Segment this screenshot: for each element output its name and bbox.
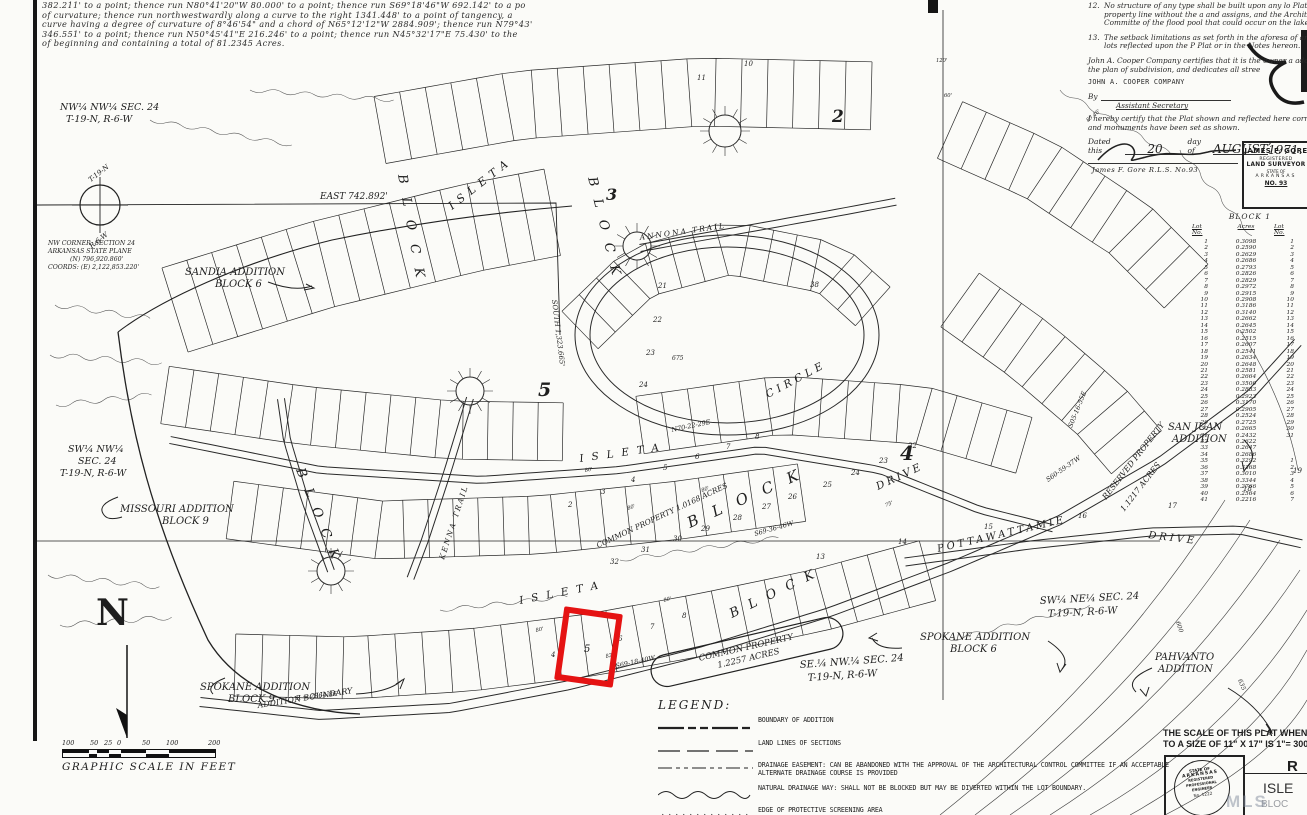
natural-drainage-way-line-icon [658, 784, 758, 804]
svg-text:8: 8 [682, 612, 687, 620]
legend: LEGEND: BOUNDARY OF ADDITION LAND LINES … [658, 698, 1218, 815]
svg-text:15: 15 [984, 523, 993, 531]
label-bearing-2: S69-36-46W [753, 519, 795, 538]
reduced-scale-note: THE SCALE OF THIS PLAT WHEN R TO A SIZE … [1163, 728, 1307, 749]
label-block-word-2: BLOCK [584, 174, 626, 289]
lot-table-col3-header: Lot No. [1274, 224, 1304, 237]
surveyor-name-line: James F. Gore R.L.S. No.93 [1092, 166, 1198, 174]
mls-watermark: MLS [1226, 792, 1268, 812]
note-12-text: No structure of any type shall be built … [1104, 2, 1307, 28]
note-13-text: The setback limitations as set forth in … [1104, 34, 1307, 51]
by-title: Assistant Secretary [1116, 102, 1307, 111]
lot-table: Lot No. Acres Lot No. 10.3098120.2590230… [1192, 224, 1307, 503]
svg-text:13: 13 [816, 553, 825, 561]
svg-text:2: 2 [567, 501, 573, 509]
label-missouri-2: BLOCK 9 [161, 516, 209, 527]
label-sw-ne-1: SW¼ NE¼ SEC. 24 [1040, 591, 1140, 607]
svg-text:7: 7 [650, 623, 655, 631]
label-missouri-1: MISSOURI ADDITION [119, 504, 235, 515]
label-kenna: KENNA TRAIL [437, 484, 470, 562]
legend-title: LEGEND: [658, 698, 1218, 712]
lot-table-title: BLOCK 1 [1196, 212, 1304, 221]
north-arrow-letter: N [96, 592, 129, 634]
highlighted-lot-5-rectangle [554, 606, 623, 687]
label-drive-right: DRIVE [1147, 530, 1198, 547]
lot-table-col1-header: Lot No. [1192, 224, 1218, 237]
scan-left-border [33, 0, 37, 741]
svg-text:80': 80' [627, 503, 637, 511]
svg-text:32: 32 [610, 558, 619, 566]
label-sw-nw-2: SEC. 24 [78, 456, 117, 467]
svg-text:17: 17 [1168, 502, 1177, 510]
label-circle-mid: CIRCLE [764, 359, 829, 401]
label-nw-quarter: NW¼ NW¼ SEC. 24 [59, 102, 159, 113]
svg-text:26: 26 [787, 493, 797, 501]
surveyor-certification: I hereby certify that the Plat shown and… [1088, 115, 1307, 132]
land-lines-of-sections-line-icon [658, 739, 758, 759]
label-sandia-2: BLOCK 6 [214, 279, 262, 290]
svg-text:7: 7 [726, 443, 731, 451]
graphic-scale-label: GRAPHIC SCALE IN FEET [62, 761, 292, 773]
label-sandia-1: SANDIA ADDITION [185, 267, 286, 278]
label-sw-nw-1: SW¼ NW¼ [68, 444, 124, 455]
svg-text:14: 14 [898, 538, 907, 546]
svg-text:10: 10 [744, 60, 753, 68]
svg-text:28: 28 [732, 514, 742, 522]
note-12-number: 12. [1088, 2, 1104, 28]
label-sw-ne-2: T-19-N, R-6-W [1048, 605, 1119, 620]
label-nw-corner-3: (N) 796,920.860' [70, 256, 124, 263]
note-13-number: 13. [1088, 34, 1104, 51]
label-isleta-bottom: ISLETA [517, 578, 607, 607]
company-name: JOHN A. COOPER COMPANY [1088, 78, 1307, 87]
protective-screening-line-icon [658, 806, 758, 815]
engineer-stamp-seal: STATE OF ARKANSAS REGISTERED PROFESSIONA… [1170, 756, 1233, 815]
plat-notes: 12. No structure of any type shall be bu… [1088, 2, 1307, 132]
label-block-word-3: BLOCK [292, 465, 347, 572]
svg-text:27: 27 [761, 503, 771, 511]
label-se-nw-1: SE.¼ NW.¼ SEC. 24 [799, 653, 904, 671]
svg-text:11: 11 [697, 74, 706, 82]
label-corner-t19n: T-19-N [87, 162, 111, 183]
svg-text:6: 6 [695, 453, 700, 461]
svg-text:38: 38 [810, 281, 819, 289]
svg-text:4: 4 [630, 476, 635, 484]
label-bearing-5: S05-16-55E [1066, 390, 1088, 429]
label-block-word-1: BLOCK [394, 172, 430, 292]
svg-text:22: 22 [907, 442, 917, 450]
label-se-nw-2: T-19-N, R-6-W [807, 668, 878, 684]
signature-underline [1088, 163, 1238, 164]
label-pottawattamie: POTTAWATTAMIE [935, 515, 1067, 556]
cooper-certification: John A. Cooper Company certifies that it… [1088, 57, 1307, 74]
svg-text:120': 120' [936, 58, 947, 64]
svg-text:30: 30 [673, 535, 682, 543]
label-spokane6-2: BLOCK 6 [949, 644, 997, 655]
surveyor-stamp: JAMES F. GORE REGISTERED LAND SURVEYOR S… [1242, 141, 1307, 209]
svg-text:80': 80' [584, 467, 593, 474]
svg-text:29: 29 [700, 525, 710, 533]
label-nw-quarter-2: T-19-N, R-6-W [66, 114, 133, 125]
svg-text:4: 4 [550, 651, 555, 659]
label-block-num-3: 3 [606, 185, 617, 204]
legal-description: 382.211' to a point; thence run N80°41'2… [42, 1, 947, 49]
label-contour-635: 635 [1236, 678, 1247, 691]
svg-text:23: 23 [878, 457, 888, 465]
label-nw-corner-1: NW CORNER, SECTION 24 [47, 240, 135, 247]
label-contour-675: 675 [672, 355, 684, 362]
graphic-scale-ticks: 100 50 25 0 50 100 200 [62, 739, 292, 748]
svg-text:16: 16 [1078, 512, 1087, 520]
label-isleta-top: ISLETA [445, 154, 515, 213]
graphic-scale-bar [62, 749, 216, 758]
label-sw-nw-3: T-19-N, R-6-W [60, 468, 127, 479]
svg-text:21: 21 [657, 282, 667, 290]
svg-text:75': 75' [884, 500, 894, 509]
drainage-easement-line-icon [658, 761, 758, 781]
lot-table-row: 410.22167 [1192, 497, 1307, 503]
svg-text:80': 80' [663, 596, 672, 604]
label-nw-corner-2: ARKANSAS STATE PLANE [47, 248, 132, 255]
svg-text:24: 24 [638, 381, 648, 389]
title-block-divider [1245, 773, 1307, 774]
label-bearing-4: S60-59-37W [1045, 453, 1084, 483]
svg-text:8: 8 [755, 433, 760, 441]
svg-text:25: 25 [822, 481, 832, 489]
label-block-num-2: 2 [831, 107, 844, 127]
lot-table-col2-header: Acres [1218, 224, 1274, 237]
label-east-dim: EAST 742.892' [319, 192, 388, 202]
svg-text:80': 80' [535, 626, 544, 634]
graphic-scale: 100 50 25 0 50 100 200 GRAPHIC SCALE IN … [62, 739, 292, 773]
label-pahvanto-1: PAHVANTO [1154, 652, 1214, 663]
plat-map-page: NW¼ NW¼ SEC. 24 T-19-N, R-6-W T-19-N R-6… [0, 0, 1307, 815]
label-spokane6-1: SPOKANE ADDITION [920, 632, 1031, 643]
svg-text:23: 23 [645, 349, 655, 357]
label-contour-600: 600 [1174, 620, 1184, 633]
by-label: By [1088, 93, 1098, 102]
svg-text:22: 22 [652, 316, 662, 324]
svg-text:5: 5 [663, 464, 668, 472]
svg-text:60': 60' [944, 93, 952, 99]
boundary-of-addition-line-icon [658, 716, 758, 736]
lot-table-rows: 10.3098120.2590230.2629340.2686450.27935… [1192, 239, 1307, 504]
svg-text:24: 24 [850, 469, 860, 477]
label-block-num-5: 5 [538, 379, 551, 401]
label-nw-corner-4: COORDS: (E) 2,122,853.220' [48, 264, 139, 271]
svg-text:31: 31 [641, 546, 650, 554]
label-pahvanto-2: ADDITION [1157, 664, 1214, 675]
svg-text:3: 3 [601, 488, 606, 496]
label-spokane9-1: SPOKANE ADDITION [200, 682, 311, 693]
